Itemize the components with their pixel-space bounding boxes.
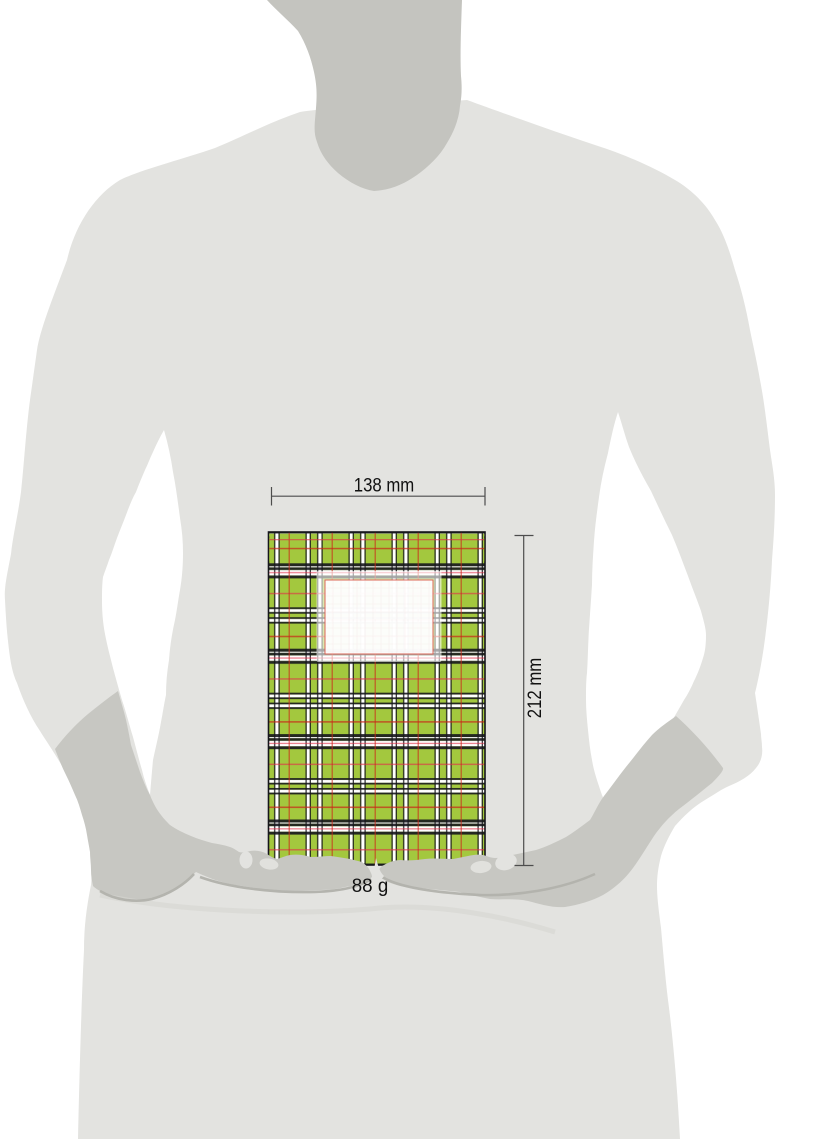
svg-text:212 mm: 212 mm [525,658,546,719]
svg-text:88 g: 88 g [352,876,389,897]
svg-text:138 mm: 138 mm [354,476,415,497]
